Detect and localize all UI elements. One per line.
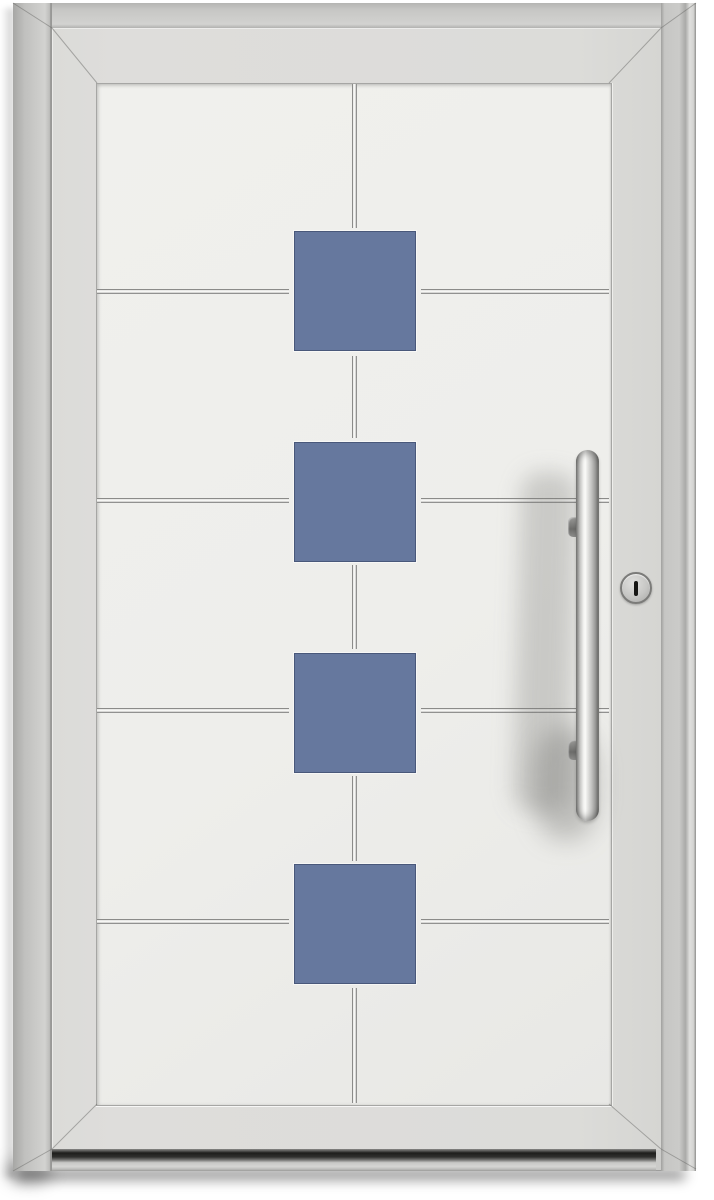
groove-horizontal-1-right: [421, 289, 609, 294]
bar-handle: [576, 450, 599, 821]
groove-horizontal-2-left: [97, 498, 289, 503]
frame-right-jamb: [661, 3, 696, 1171]
door-product-image: [0, 0, 714, 1200]
accent-square-2: [294, 442, 416, 562]
groove-horizontal-4-right: [421, 919, 609, 924]
groove-horizontal-3-left: [97, 708, 289, 713]
accent-square-4: [294, 864, 416, 984]
keyhole-slot: [634, 581, 638, 596]
frame-left-jamb: [13, 3, 52, 1171]
groove-horizontal-1-left: [97, 289, 289, 294]
groove-vertical-segment-4: [352, 776, 357, 861]
accent-square-3: [294, 653, 416, 773]
threshold: [52, 1149, 656, 1171]
groove-vertical-segment-1: [352, 84, 357, 228]
frame-head: [13, 3, 696, 28]
lock-cylinder: [620, 572, 652, 604]
groove-vertical-segment-3: [352, 565, 357, 649]
groove-vertical-segment-2: [352, 356, 357, 438]
groove-horizontal-4-left: [97, 919, 289, 924]
groove-vertical-segment-5: [352, 988, 357, 1103]
accent-square-1: [294, 231, 416, 351]
